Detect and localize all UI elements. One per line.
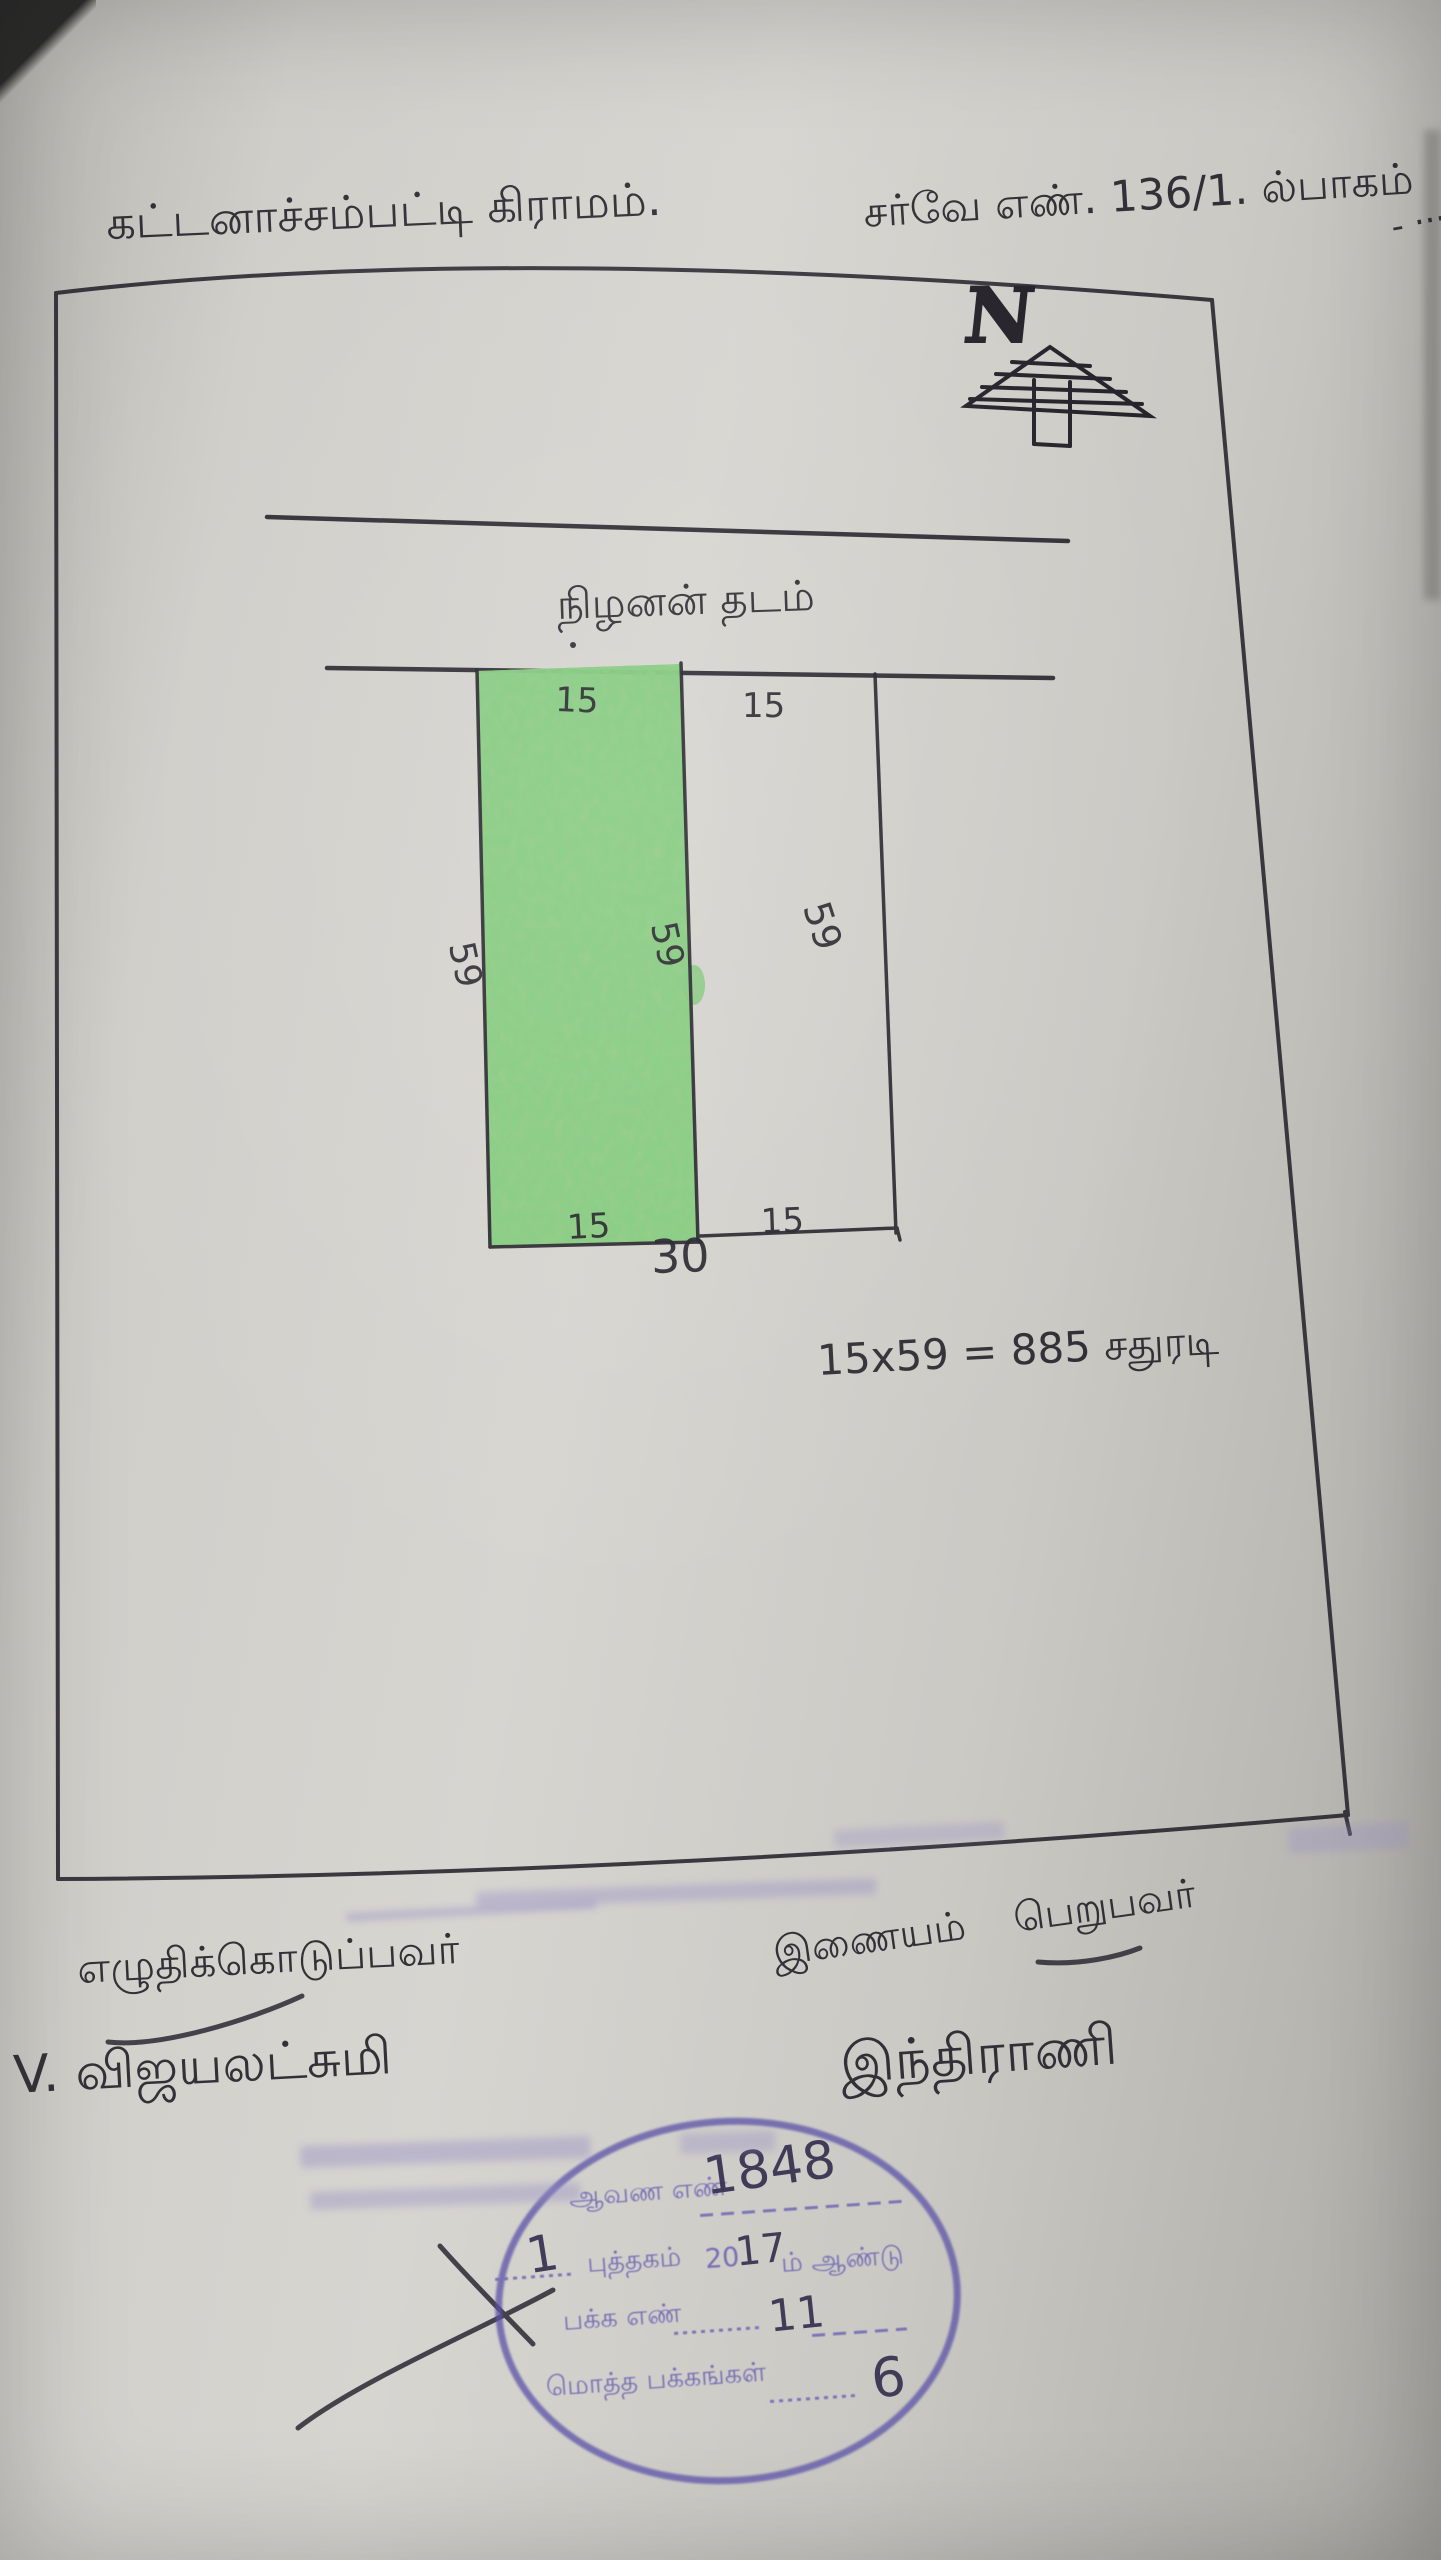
scanned-land-sketch-document: N bbox=[0, 0, 1441, 2560]
north-arrow-icon: N bbox=[960, 270, 1150, 446]
bleed-artifact bbox=[680, 2131, 776, 2154]
dim-top-right: 15 bbox=[742, 686, 785, 726]
dim-bottom-left: 15 bbox=[566, 1206, 611, 1248]
stamp-book-label: புத்தகம் bbox=[586, 2241, 682, 2282]
dim-bottom-right: 15 bbox=[760, 1200, 805, 1241]
dim-top-left: 15 bbox=[555, 680, 600, 721]
receiver-underline bbox=[1038, 1948, 1140, 1963]
dim-total-width: 30 bbox=[650, 1228, 710, 1284]
north-letter: N bbox=[960, 270, 1039, 360]
road-label: நிழனன் தடம் bbox=[556, 571, 816, 635]
stamp-total-pages-value: 6 bbox=[868, 2344, 909, 2410]
survey-dashes: - ··· bbox=[1388, 198, 1441, 247]
outer-boundary bbox=[56, 268, 1350, 1879]
